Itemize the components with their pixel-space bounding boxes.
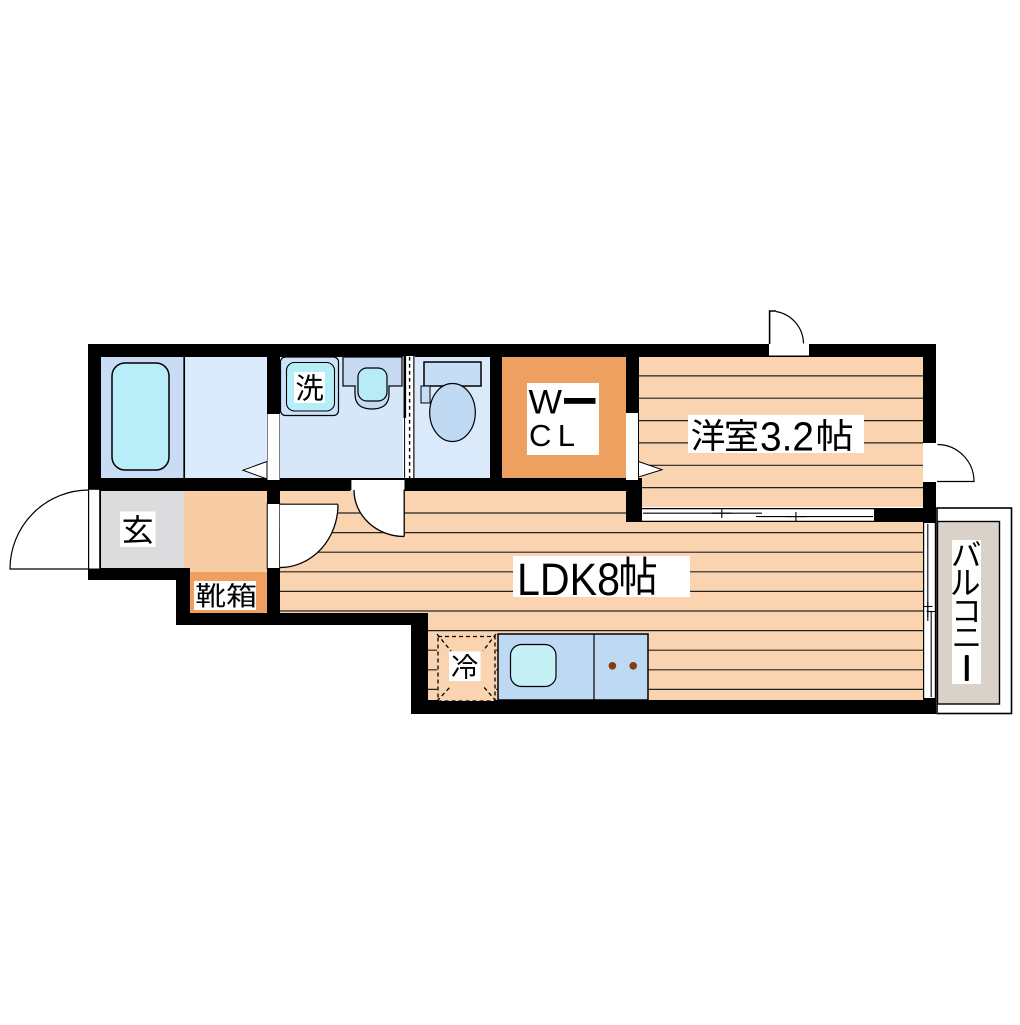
svg-text:3.2: 3.2 [760,414,814,460]
svg-text:LDK8: LDK8 [517,554,620,605]
svg-text:W: W [529,384,563,422]
